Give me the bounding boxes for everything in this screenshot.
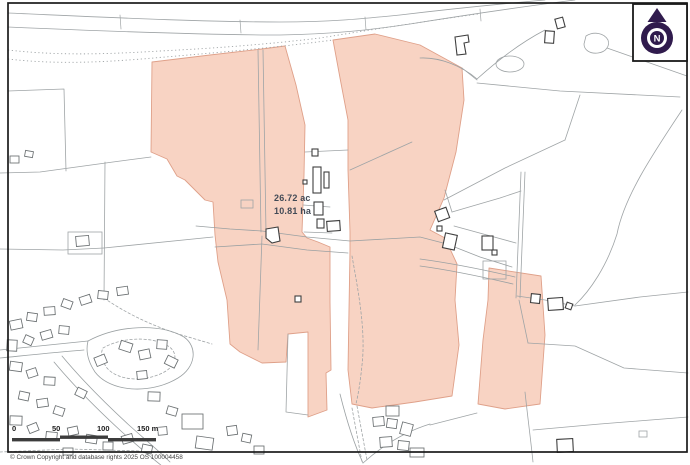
compass-rose: N <box>633 4 687 61</box>
compass-north-letter: N <box>654 34 661 45</box>
scale-bar-segment <box>108 438 156 441</box>
parcel-area-hectares: 10.81 ha <box>274 205 311 218</box>
highlighted-parcels <box>151 34 545 417</box>
site-plan-map: N <box>0 0 690 465</box>
copyright-notice: © Crown Copyright and database rights 20… <box>10 454 183 461</box>
scale-bar-segment <box>60 436 108 439</box>
pond <box>496 56 524 72</box>
site-plan-page: N 26.72 ac 10.81 ha 0 50 100 150 m © Cro… <box>0 0 690 465</box>
building <box>545 31 555 44</box>
building <box>455 35 469 55</box>
highlighted-parcel-east <box>333 34 464 408</box>
highlighted-parcel-strip <box>478 268 545 409</box>
highlighted-parcel-west <box>151 46 331 417</box>
scale-bar <box>12 436 156 442</box>
scale-bar-segment <box>12 438 60 441</box>
building <box>555 17 565 29</box>
scale-tick-50: 50 <box>52 424 60 433</box>
scale-tick-150: 150 m <box>137 424 158 433</box>
parcel-area-acres: 26.72 ac <box>274 192 311 205</box>
top-road <box>8 0 575 35</box>
scale-tick-100: 100 <box>97 424 110 433</box>
scale-tick-0: 0 <box>12 424 16 433</box>
parcel-area-label: 26.72 ac 10.81 ha <box>274 192 311 217</box>
copse-outline <box>584 33 609 53</box>
field-boundaries-east <box>420 95 688 462</box>
